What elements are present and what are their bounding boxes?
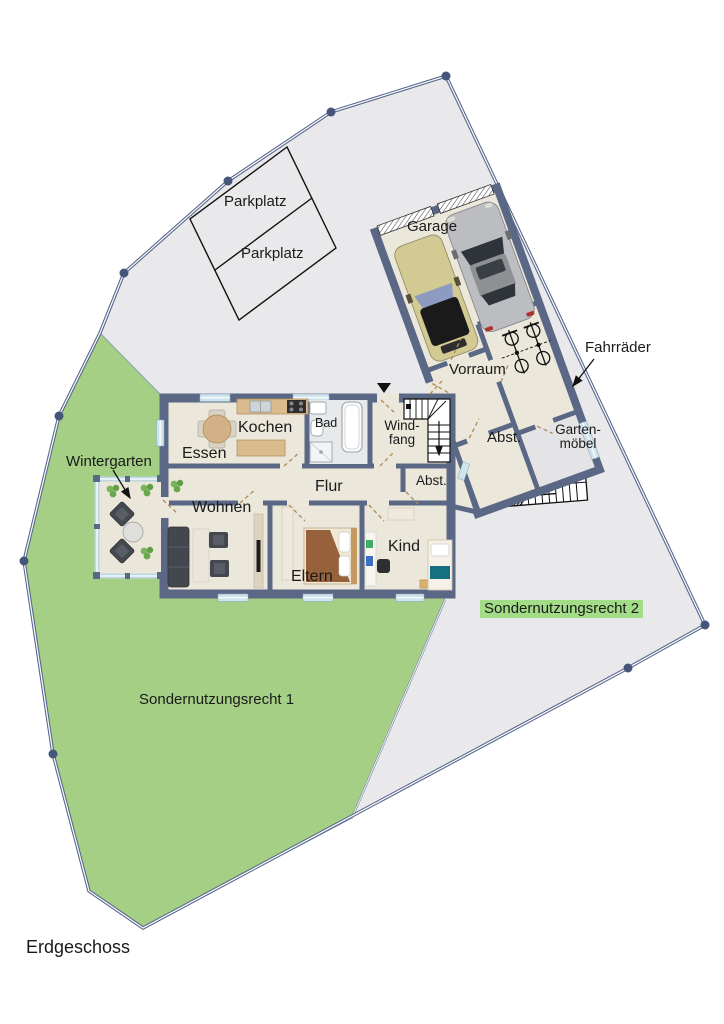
label-parkplatz-1: Parkplatz (224, 194, 287, 210)
label-garage: Garage (407, 219, 457, 235)
label-windfang: Wind-fang (376, 419, 428, 447)
bathroom-fixtures (310, 400, 368, 464)
wall-shelf (388, 508, 414, 520)
page-title: Erdgeschoss (26, 938, 130, 957)
label-wintergarten: Wintergarten (66, 454, 152, 470)
label-windfang-line2: fang (389, 432, 415, 447)
glass-table-icon (123, 522, 143, 542)
label-gartenmoebel-line1: Garten- (555, 422, 601, 437)
label-essen: Essen (182, 446, 226, 463)
label-flur: Flur (315, 479, 343, 496)
label-eltern: Eltern (291, 569, 333, 586)
rug (193, 529, 209, 582)
entrance-door-opening (377, 394, 399, 403)
kitchen-island (237, 440, 285, 456)
cooktop-icon (287, 400, 306, 413)
label-wohnen: Wohnen (192, 500, 251, 517)
label-bad: Bad (315, 417, 337, 430)
label-sondernutzungsrecht-1: Sondernutzungsrecht 1 (139, 692, 294, 708)
label-parkplatz-2: Parkplatz (241, 246, 304, 262)
label-windfang-line1: Wind- (384, 418, 419, 433)
desk-chair-icon (377, 559, 390, 573)
label-gartenmoebel-line2: möbel (560, 436, 597, 451)
site-plan (0, 0, 724, 1024)
dining-table-icon (203, 415, 231, 443)
label-kind: Kind (388, 539, 420, 556)
label-sondernutzungsrecht-2: Sondernutzungsrecht 2 (480, 600, 643, 618)
label-abstellraum-haus: Abst. (416, 474, 447, 488)
label-abstellraum-anbau: Abst. (487, 430, 521, 446)
sofa-icon (168, 527, 189, 587)
washbasin-icon (310, 402, 326, 414)
label-vorraum: Vorraum (449, 362, 506, 378)
tv-icon (257, 540, 261, 572)
label-kochen: Kochen (238, 420, 292, 437)
floor-plan-page: Parkplatz Parkplatz Garage Vorraum Fahrr… (0, 0, 724, 1024)
label-gartenmoebel: Garten-möbel (545, 423, 611, 451)
label-fahrraeder: Fahrräder (585, 340, 651, 356)
wintergarten-structure (93, 475, 164, 579)
